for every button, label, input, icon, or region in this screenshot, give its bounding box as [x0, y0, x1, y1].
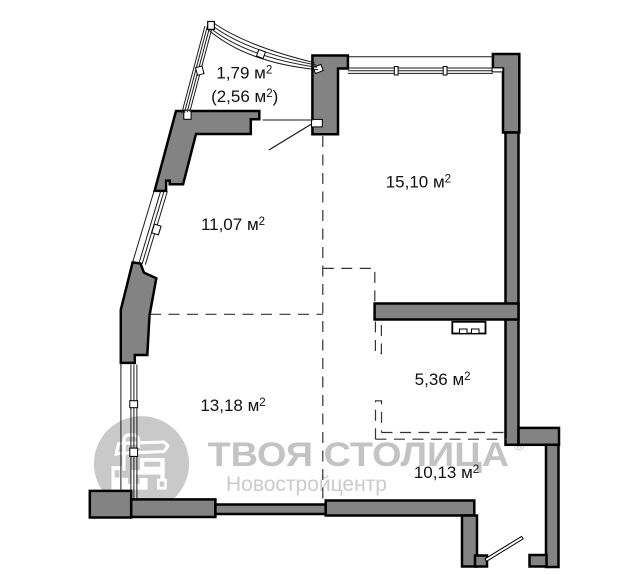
svg-text:10,13 м2: 10,13 м2 — [414, 463, 479, 482]
svg-text:5,36 м2: 5,36 м2 — [415, 370, 471, 389]
svg-text:11,07 м2: 11,07 м2 — [201, 215, 265, 234]
svg-text:1,79 м2: 1,79 м2 — [216, 64, 272, 83]
svg-text:13,18 м2: 13,18 м2 — [200, 396, 265, 415]
svg-text:Новостройцентр: Новостройцентр — [226, 473, 387, 496]
svg-text:15,10 м2: 15,10 м2 — [386, 173, 451, 192]
